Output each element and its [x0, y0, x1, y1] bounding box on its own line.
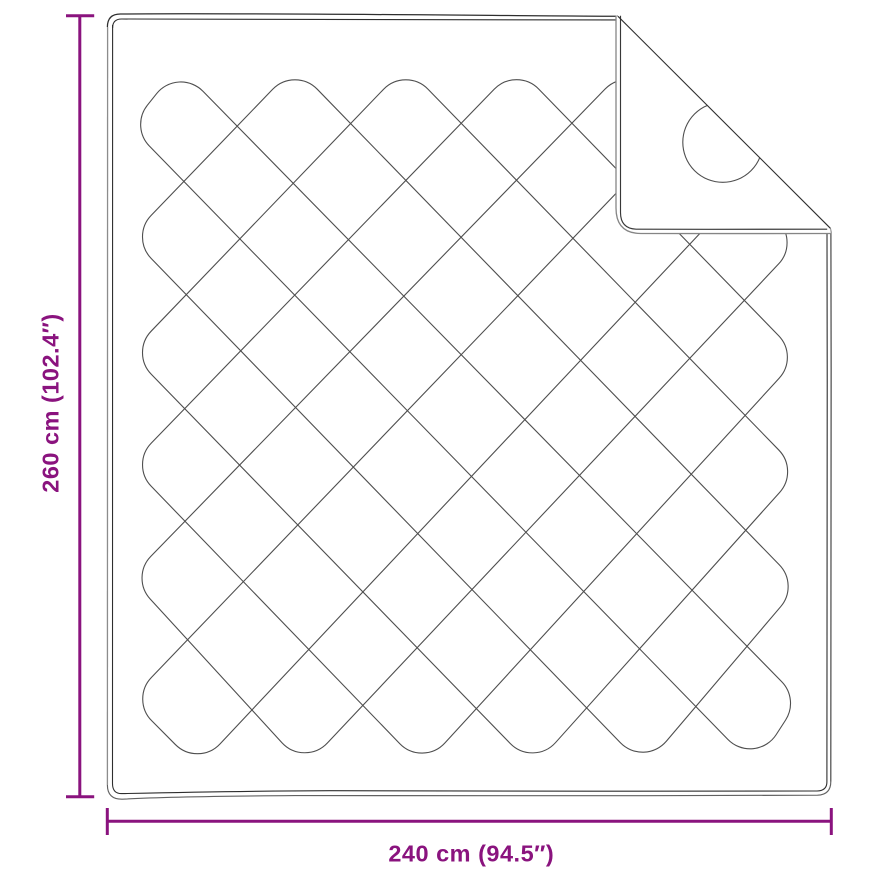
svg-text:240 cm (94.5″): 240 cm (94.5″)	[388, 841, 554, 867]
svg-text:260 cm (102.4″): 260 cm (102.4″)	[38, 313, 64, 492]
